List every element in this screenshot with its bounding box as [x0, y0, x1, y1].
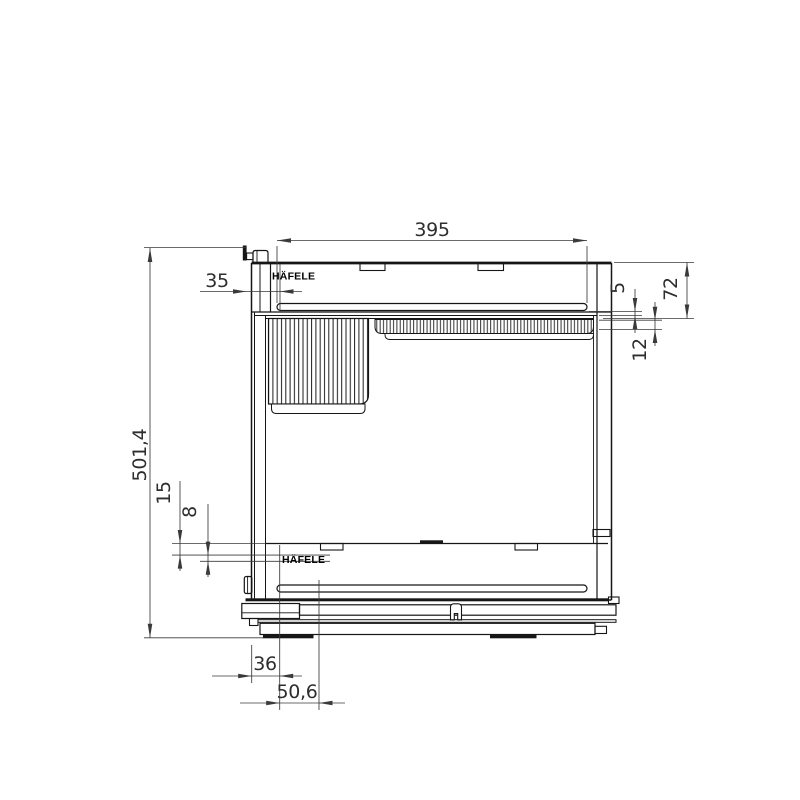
- runner-middle-rail: [258, 620, 616, 623]
- dim-label-50-6: 50,6: [276, 681, 317, 703]
- bottom-panel-clip-left: [321, 544, 344, 551]
- cabinet-body-outline: [242, 246, 619, 639]
- top-vent-grille-lip: [385, 334, 594, 340]
- top-panel-handle-slot: [277, 304, 587, 311]
- hafele-drawer-technical-drawing: 395 35 501,4 5 72 12 15 8 36 50,6 HÄFELE…: [0, 0, 800, 800]
- dim-label-395: 395: [414, 219, 449, 241]
- dim-label-5: 5: [607, 282, 629, 294]
- runner-left-block: [242, 604, 300, 619]
- dim-label-501-4: 501,4: [129, 428, 151, 481]
- left-vent-grille: [269, 319, 369, 405]
- bottom-panel-handle-slot: [277, 585, 587, 592]
- runner-foot-right: [490, 635, 537, 639]
- runner-lower-rail: [260, 623, 595, 634]
- right-wall-clip: [593, 530, 610, 537]
- dim-label-72: 72: [660, 277, 682, 301]
- runner-foot-left: [263, 635, 314, 639]
- hafele-logo-bottom: HÄFELE: [282, 553, 325, 566]
- dimension-labels: 395 35 501,4 5 72 12 15 8 36 50,6: [129, 219, 682, 703]
- left-vent-grille-lip: [272, 404, 366, 414]
- runner-center-hook: [451, 604, 462, 620]
- top-left-latch-block: [253, 251, 268, 263]
- brand-logos: HÄFELE HÄFELE: [272, 270, 325, 567]
- bottom-panel-clip-center: [420, 540, 443, 543]
- dim-label-15: 15: [153, 481, 175, 505]
- dim-label-35: 35: [205, 270, 229, 292]
- bottom-panel-clip-right: [515, 544, 538, 551]
- dim-label-8: 8: [179, 506, 201, 518]
- runner-top-strip: [246, 598, 609, 601]
- dimension-arrows: [148, 238, 690, 705]
- hafele-logo-top: HÄFELE: [272, 270, 315, 283]
- technical-drawing-page: 395 35 501,4 5 72 12 15 8 36 50,6 HÄFELE…: [0, 0, 800, 800]
- dim-label-36: 36: [253, 653, 277, 675]
- top-vent-grille: [375, 320, 594, 334]
- dim-label-12: 12: [629, 338, 651, 362]
